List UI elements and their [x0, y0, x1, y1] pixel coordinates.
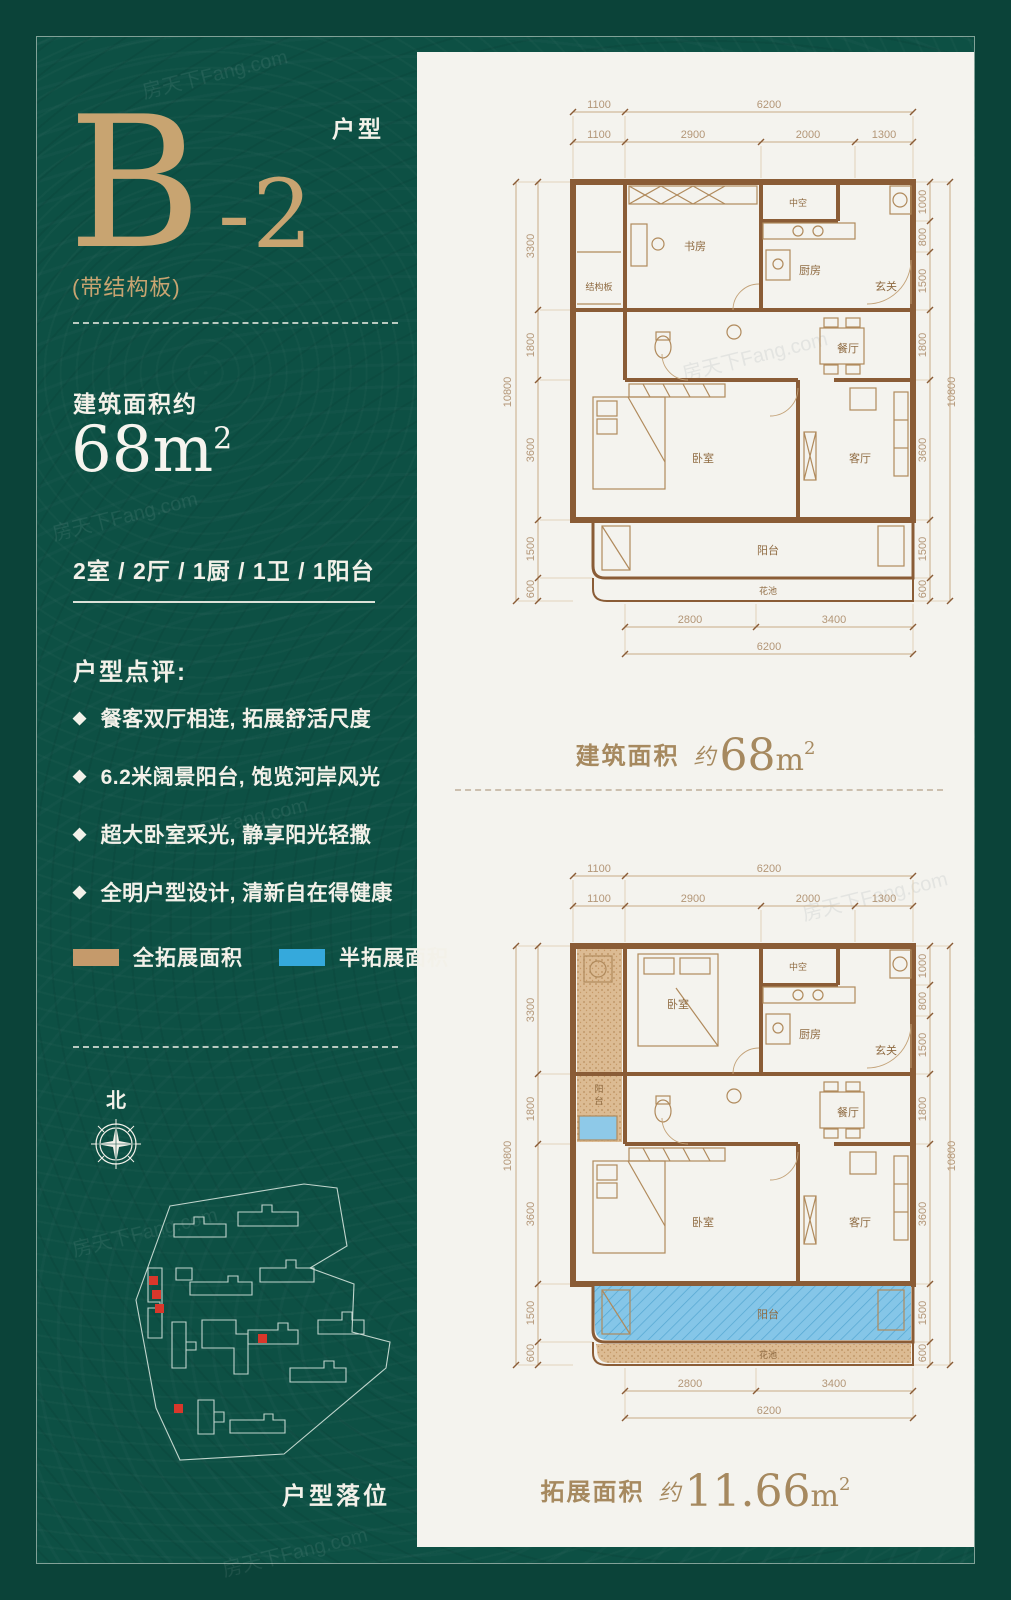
- dim-label: 2900: [681, 129, 705, 141]
- caption-value: 68: [720, 730, 776, 781]
- caption-value: 11.66: [685, 1466, 811, 1517]
- diamond-bullet-icon: ◆: [73, 824, 87, 844]
- room-label-balcony: 阳台: [757, 543, 779, 557]
- full-extension-swatch: [73, 949, 119, 966]
- room-label-living: 客厅: [849, 1215, 871, 1229]
- dim-label: 1500: [917, 269, 929, 293]
- review-title: 户型点评:: [73, 652, 187, 687]
- room-label-void: 中空: [789, 197, 807, 208]
- dim-label: 1500: [917, 1301, 929, 1325]
- dim-label: 1500: [917, 537, 929, 561]
- review-item: ◆超大卧室采光, 静享阳光轻撒: [73, 819, 393, 849]
- room-label-study: 书房: [684, 240, 706, 253]
- plan1-caption: 建筑面积约68m2: [417, 730, 974, 781]
- dim-label: 1800: [917, 1097, 929, 1121]
- dim-label: 6200: [757, 1405, 781, 1417]
- room-label-dining: 餐厅: [837, 1105, 859, 1119]
- area-number: 68: [71, 413, 152, 487]
- planter-extension-area: [596, 1344, 911, 1363]
- dim-label: 6200: [757, 863, 781, 875]
- review-item: ◆餐客双厅相连, 拓展舒活尺度: [73, 703, 393, 733]
- room-label-slab: 结构板: [585, 281, 612, 292]
- room-label-kitchen: 厨房: [799, 1028, 821, 1041]
- caption-sup: 2: [839, 1474, 850, 1495]
- area-unit: m: [152, 413, 213, 487]
- dim-label: 3300: [525, 998, 537, 1022]
- room-label-bedroom: 卧室: [692, 451, 714, 465]
- full-extension-label: 全拓展面积: [133, 942, 243, 972]
- review-list: ◆餐客双厅相连, 拓展舒活尺度 ◆6.2米阔景阳台, 饱览河岸风光 ◆超大卧室采…: [73, 703, 393, 935]
- room-label-void: 中空: [789, 961, 807, 972]
- dim-label: 2000: [796, 893, 820, 905]
- dim-label: 1300: [872, 893, 896, 905]
- dim-label: 1100: [587, 129, 611, 141]
- walls: [573, 946, 913, 1365]
- review-item: ◆全明户型设计, 清新自在得健康: [73, 877, 393, 907]
- review-text: 超大卧室采光, 静享阳光轻撒: [101, 819, 372, 849]
- diamond-bullet-icon: ◆: [73, 766, 87, 786]
- unit-type-label: 户型: [332, 110, 384, 144]
- unit-suffix: -2: [218, 168, 315, 263]
- compass-north-label: 北: [84, 1084, 148, 1113]
- room-label-entry: 玄关: [875, 279, 897, 293]
- room-label-kitchen: 厨房: [799, 264, 821, 277]
- review-text: 餐客双厅相连, 拓展舒活尺度: [101, 703, 372, 733]
- floor-plan-top: 1100 6200 1100 2900 2000 1300 3300 1800 …: [498, 92, 964, 672]
- room-label-dining: 餐厅: [837, 341, 859, 355]
- dim-label: 10800: [502, 377, 514, 408]
- caption-sup: 2: [804, 738, 815, 759]
- review-text: 全明户型设计, 清新自在得健康: [101, 877, 393, 907]
- poster-root: 房天下Fang.com 房天下Fang.com 房天下Fang.com 房天下F…: [0, 0, 1011, 1600]
- compass-rose-icon: [89, 1117, 143, 1171]
- caption-label: 建筑面积: [576, 743, 680, 770]
- dim-label: 600: [525, 1344, 537, 1362]
- dim-label: 10800: [502, 1141, 514, 1172]
- dim-label: 2000: [796, 129, 820, 141]
- plan2-caption: 拓展面积约11.66m2: [417, 1466, 974, 1517]
- area-value: 68m2: [71, 418, 232, 482]
- site-plan: [52, 1172, 397, 1472]
- dim-label: 3400: [822, 1378, 846, 1390]
- dim-label: 3600: [917, 438, 929, 462]
- dim-label: 1500: [525, 1301, 537, 1325]
- dim-label: 1800: [525, 1097, 537, 1121]
- dim-label: 600: [917, 580, 929, 598]
- half-extension-swatch: [279, 949, 325, 966]
- dim-label: 2800: [678, 614, 702, 626]
- site-buildings: [148, 1205, 364, 1434]
- room-label-balcony-strip: 阳: [594, 1084, 603, 1094]
- dim-label: 3600: [525, 438, 537, 462]
- dim-label: 2900: [681, 893, 705, 905]
- caption-approx: 约: [659, 1481, 681, 1506]
- caption-unit: m: [776, 743, 804, 778]
- dim-label: 1500: [917, 1033, 929, 1057]
- review-text: 6.2米阔景阳台, 饱览河岸风光: [101, 761, 381, 791]
- dim-label: 1500: [525, 537, 537, 561]
- area-sup: 2: [213, 422, 232, 457]
- legend: 全拓展面积 半拓展面积: [73, 942, 471, 972]
- dim-label: 800: [917, 228, 929, 246]
- floor-plan-bottom: 1100 6200 1100 2900 2000 1300 3300 1800 …: [498, 856, 964, 1436]
- dim-label: 600: [525, 580, 537, 598]
- compass: 北: [84, 1084, 148, 1176]
- diamond-bullet-icon: ◆: [73, 882, 87, 902]
- dim-label: 10800: [946, 377, 958, 408]
- walls: [573, 182, 913, 601]
- unit-name: B: [68, 92, 202, 274]
- dim-label: 3600: [525, 1202, 537, 1226]
- dashed-divider: [73, 322, 398, 324]
- room-label-planter: 花池: [759, 585, 777, 596]
- dim-label: 1300: [872, 129, 896, 141]
- room-label-living: 客厅: [849, 451, 871, 465]
- dim-label: 1800: [525, 333, 537, 357]
- diamond-bullet-icon: ◆: [73, 708, 87, 728]
- dim-label: 10800: [946, 1141, 958, 1172]
- room-label-bedroom: 卧室: [692, 1215, 714, 1229]
- dim-label: 600: [917, 1344, 929, 1362]
- dim-label: 3600: [917, 1202, 929, 1226]
- dim-label: 6200: [757, 641, 781, 653]
- dim-label: 1000: [917, 954, 929, 978]
- caption-unit: m: [811, 1479, 839, 1514]
- site-caption: 户型落位: [282, 1476, 390, 1511]
- structure-note: (带结构板): [72, 270, 181, 302]
- half-extension-label: 半拓展面积: [339, 942, 449, 972]
- dim-label: 800: [917, 992, 929, 1010]
- dim-label: 1100: [587, 893, 611, 905]
- plan-divider: [455, 789, 943, 791]
- room-label-entry: 玄关: [875, 1043, 897, 1057]
- dim-label: 1000: [917, 190, 929, 214]
- room-label-balcony: 阳台: [757, 1307, 779, 1321]
- dim-label: 6200: [757, 99, 781, 111]
- room-label-balcony-strip: 台: [594, 1095, 603, 1106]
- dashed-divider: [73, 1046, 398, 1048]
- dim-label: 1100: [587, 99, 611, 111]
- dim-label: 3400: [822, 614, 846, 626]
- dim-label: 3300: [525, 234, 537, 258]
- caption-label: 拓展面积: [541, 1479, 645, 1506]
- room-label-bedroom-top: 卧室: [667, 997, 689, 1011]
- caption-approx: 约: [694, 745, 716, 770]
- layout-summary: 2室 / 2厅 / 1厨 / 1卫 / 1阳台: [73, 552, 375, 603]
- dim-label: 2800: [678, 1378, 702, 1390]
- room-label-planter: 花池: [759, 1349, 777, 1360]
- dim-label: 1800: [917, 333, 929, 357]
- half-extension-area: [594, 1286, 911, 1340]
- review-item: ◆6.2米阔景阳台, 饱览河岸风光: [73, 761, 393, 791]
- dim-label: 1100: [587, 863, 611, 875]
